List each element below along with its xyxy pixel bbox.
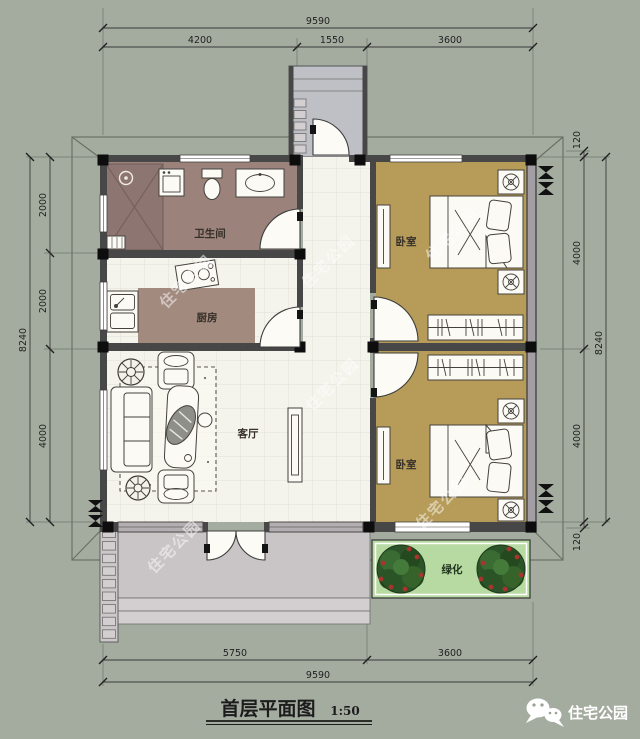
green-area: 绿化	[372, 540, 530, 598]
terrace	[100, 524, 370, 642]
window	[100, 195, 107, 232]
side-table	[198, 413, 212, 427]
kitchen-sink	[107, 291, 138, 332]
dim-left-seg2: 4000	[38, 424, 49, 448]
dim-left-seg0: 2000	[38, 193, 49, 217]
bathroom-vanity	[236, 169, 284, 197]
nightstand	[498, 399, 524, 423]
floor-drain	[107, 236, 125, 249]
shower-area	[106, 164, 163, 250]
window	[180, 155, 250, 162]
armchair	[158, 352, 194, 389]
wardrobe	[428, 315, 523, 340]
green-label: 绿化	[442, 563, 463, 576]
sofa	[111, 387, 152, 472]
floor-plan-canvas: 9590 4200 1550 3600 8240 2000 2000 4000 …	[0, 0, 640, 739]
tv-cabinet	[288, 408, 302, 482]
dim-top-seg1: 1550	[320, 35, 344, 46]
nightstand	[498, 270, 524, 294]
dim-left-total: 8240	[18, 328, 29, 352]
title-scale: 1:50	[330, 704, 359, 718]
bedroom-top-label: 卧室	[396, 235, 417, 248]
bathroom-label: 卫生间	[194, 227, 226, 240]
dim-right-seg1: 4000	[572, 241, 583, 265]
plant	[126, 476, 150, 500]
washing-machine	[159, 169, 184, 196]
armchair	[158, 470, 194, 503]
dim-top-total: 9590	[306, 16, 330, 27]
living-label: 客厅	[237, 427, 259, 440]
plant	[118, 359, 144, 385]
entry-steps	[294, 99, 306, 153]
dim-right-seg2: 4000	[572, 424, 583, 448]
bedroom-bottom-label: 卧室	[396, 458, 417, 471]
dim-bottom-total: 9590	[306, 670, 330, 681]
dim-top-seg0: 4200	[188, 35, 212, 46]
radiator	[377, 427, 390, 484]
kitchen-label: 厨房	[197, 311, 218, 324]
window	[390, 155, 462, 162]
terrace-side-stairs	[100, 524, 118, 642]
dim-bottom-seg0: 5750	[223, 648, 247, 659]
dim-right-seg3: 120	[572, 533, 583, 551]
wardrobe	[428, 355, 523, 380]
bed	[430, 425, 523, 497]
tree	[377, 545, 425, 593]
title-text: 首层平面图	[220, 697, 315, 720]
window	[100, 390, 107, 470]
dim-right-seg0: 120	[572, 131, 583, 149]
brand-logo-text: 住宅公园	[568, 704, 628, 722]
dim-bottom-seg1: 3600	[438, 648, 462, 659]
tree	[477, 545, 525, 593]
nightstand	[498, 499, 524, 521]
dim-right-total: 8240	[594, 331, 605, 355]
radiator	[377, 205, 390, 268]
window	[100, 282, 107, 330]
dim-top-seg2: 3600	[438, 35, 462, 46]
toilet	[202, 169, 222, 200]
nightstand	[498, 170, 524, 194]
window-sill	[269, 522, 363, 532]
dim-left-seg1: 2000	[38, 289, 49, 313]
